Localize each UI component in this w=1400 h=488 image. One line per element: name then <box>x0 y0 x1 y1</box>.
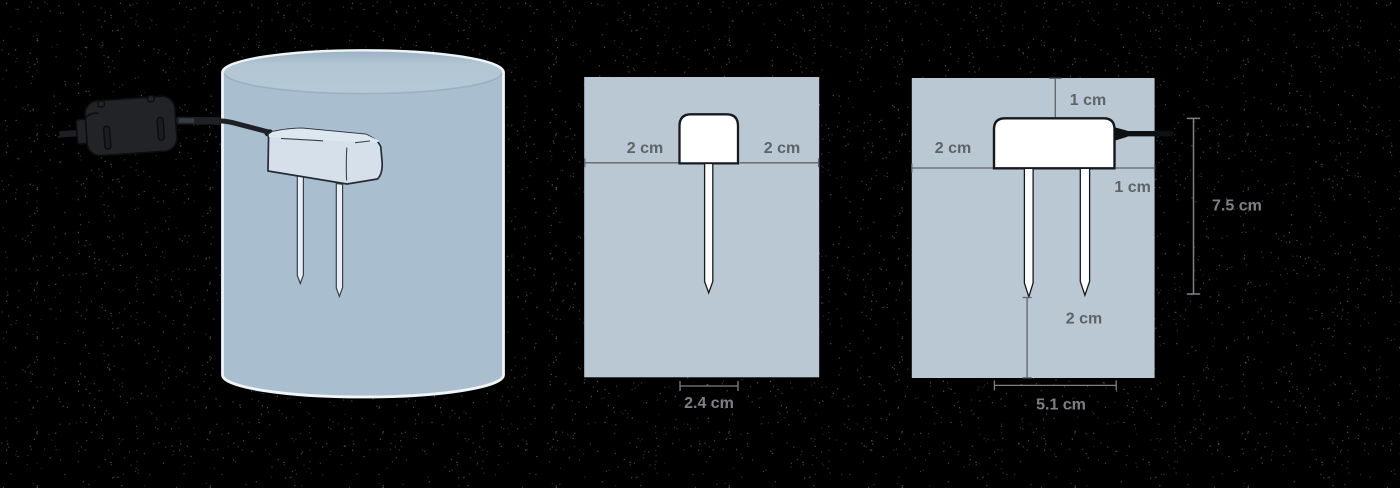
svg-text:1 cm: 1 cm <box>1070 92 1106 109</box>
svg-text:2 cm: 2 cm <box>1066 311 1102 328</box>
svg-text:2.4 cm: 2.4 cm <box>684 395 734 412</box>
svg-text:1 cm: 1 cm <box>1114 179 1150 196</box>
svg-text:7.5 cm: 7.5 cm <box>1212 197 1262 214</box>
svg-text:2 cm: 2 cm <box>627 140 663 157</box>
svg-text:5.1 cm: 5.1 cm <box>1036 396 1086 413</box>
svg-text:2 cm: 2 cm <box>764 140 800 157</box>
svg-text:2 cm: 2 cm <box>935 140 971 157</box>
